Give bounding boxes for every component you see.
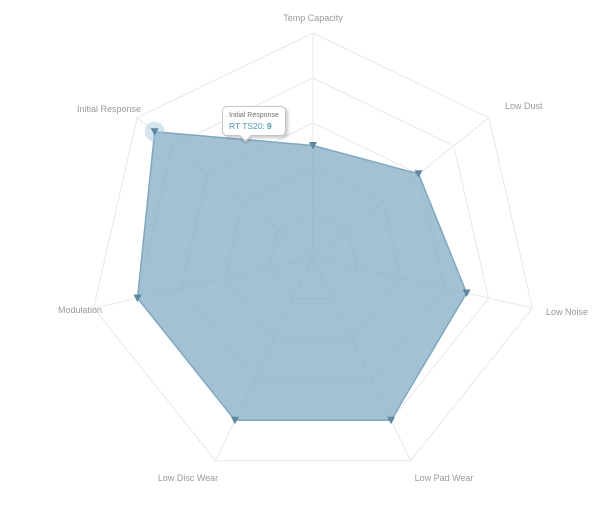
tooltip-value: 9 — [267, 121, 272, 131]
axis-label-temp-capacity: Temp Capacity — [283, 13, 343, 23]
axis-label-initial-response: Initial Response — [77, 104, 141, 114]
tooltip-category: Initial Response — [229, 112, 279, 119]
axis-label-low-pad-wear: Low Pad Wear — [415, 473, 474, 483]
tooltip-series-label: RT TS20: — [229, 121, 265, 131]
radar-chart: Temp CapacityLow DustLow NoiseLow Pad We… — [0, 0, 600, 516]
axis-label-low-disc-wear: Low Disc Wear — [158, 473, 218, 483]
tooltip: Initial Response RT TS20:9 — [222, 106, 286, 136]
tooltip-value-line: RT TS20:9 — [229, 121, 279, 131]
radar-chart-canvas: Temp CapacityLow DustLow NoiseLow Pad We… — [0, 0, 600, 516]
axis-label-low-dust: Low Dust — [505, 101, 543, 111]
axis-label-modulation: Modulation — [58, 305, 102, 315]
axis-label-low-noise: Low Noise — [546, 307, 588, 317]
